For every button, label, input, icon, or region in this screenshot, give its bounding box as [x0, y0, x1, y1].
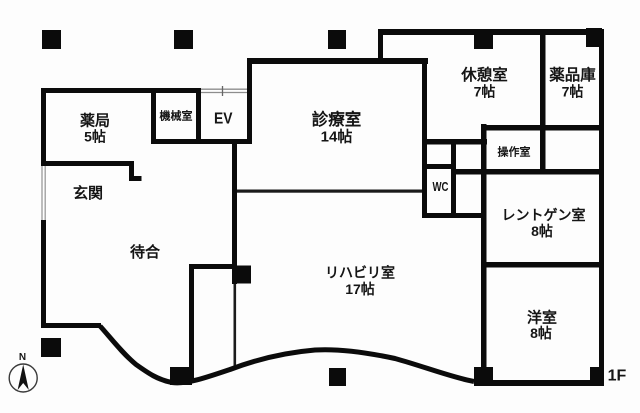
svg-text:EV: EV: [214, 110, 233, 127]
svg-text:リハビリ室: リハビリ室: [325, 265, 395, 281]
svg-text:17帖: 17帖: [345, 281, 375, 297]
svg-text:機械室: 機械室: [160, 109, 193, 123]
svg-text:7帖: 7帖: [562, 84, 584, 100]
svg-text:5帖: 5帖: [84, 129, 106, 145]
svg-text:薬品庫: 薬品庫: [548, 65, 596, 84]
svg-text:WC: WC: [433, 179, 449, 194]
svg-text:レントゲン室: レントゲン室: [502, 207, 586, 223]
svg-text:14帖: 14帖: [321, 128, 353, 146]
svg-text:8帖: 8帖: [530, 325, 552, 341]
svg-text:N: N: [19, 352, 26, 363]
svg-text:8帖: 8帖: [531, 223, 553, 239]
svg-text:診療室: 診療室: [312, 109, 362, 129]
svg-text:操作室: 操作室: [498, 145, 531, 159]
svg-text:玄関: 玄関: [73, 184, 103, 202]
svg-text:待合: 待合: [130, 243, 161, 261]
svg-text:薬局: 薬局: [79, 112, 110, 130]
svg-text:1F: 1F: [608, 368, 627, 385]
svg-text:休憩室: 休憩室: [460, 65, 508, 84]
svg-text:洋室: 洋室: [527, 309, 557, 327]
svg-text:7帖: 7帖: [474, 84, 496, 100]
